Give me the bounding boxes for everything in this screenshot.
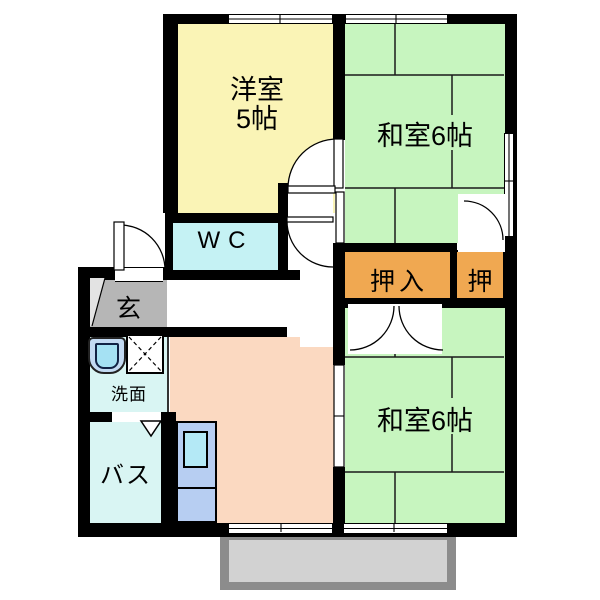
- floorplan: 洋室 5帖 和室6帖 和室6帖 WC 玄 押入 押 洗面 バス: [0, 0, 600, 600]
- wall-lower-room-left-b: [333, 467, 345, 525]
- wall-washroom-bath-divider: [87, 412, 112, 422]
- label-washroom: 洗面: [90, 380, 168, 405]
- corridor-upper: [288, 188, 333, 270]
- door-leaf-western: [334, 139, 343, 188]
- washing-machine-pan-icon: [126, 334, 164, 374]
- label-japanese-upper: 和室6帖: [345, 114, 505, 153]
- wall-wc-bottom: [165, 270, 300, 280]
- window-icon-japanese-top: [345, 14, 448, 24]
- label-bath: バス: [90, 455, 162, 490]
- window-icon-dk-bottom: [228, 523, 333, 534]
- wall-oshiire-top: [333, 243, 455, 252]
- door-leaf-entrance: [114, 222, 124, 270]
- corridor-lower: [300, 270, 333, 347]
- wall-wc-top: [165, 213, 290, 223]
- balcony-floor: [229, 540, 447, 582]
- wall-lower-room-left-a: [333, 307, 345, 365]
- wall-left-lower: [78, 267, 90, 537]
- label-japanese-lower: 和室6帖: [345, 399, 505, 438]
- sliding-door-icon-japanese-upper: [336, 192, 344, 243]
- label-oshi: 押: [455, 262, 505, 298]
- label-western-line1: 洋室: [230, 75, 284, 105]
- kitchen-unit-icon: [176, 421, 217, 523]
- washbasin-bowl-icon: [95, 343, 119, 369]
- label-western-line2: 5帖: [236, 104, 278, 134]
- label-entrance: 玄: [90, 289, 167, 325]
- window-icon-japanese-bottom: [343, 523, 448, 534]
- entrance-door-threshold: [115, 267, 163, 282]
- window-icon-western-top: [228, 14, 333, 24]
- door-swing-icon-entrance: [120, 225, 165, 270]
- wall-hall-bottom: [87, 327, 287, 337]
- window-icon-japanese-right: [504, 133, 514, 237]
- wall-oshiire-bottom: [333, 298, 517, 308]
- wall-porch-ledge: [90, 267, 115, 280]
- kitchen-sink-icon: [183, 431, 208, 468]
- wall-bath-dk: [161, 412, 176, 523]
- wall-corridor-left: [278, 183, 288, 280]
- wall-porch-corner: [163, 267, 173, 280]
- label-western-room: 洋室 5帖: [197, 76, 317, 134]
- label-wc: WC: [173, 227, 278, 255]
- kitchen-divider-line: [178, 487, 215, 489]
- wall-left-upper: [163, 14, 178, 213]
- label-oshiire: 押入: [343, 262, 455, 298]
- wall-right: [505, 14, 517, 533]
- wall-central-upper: [333, 14, 345, 140]
- sliding-door-icon-japanese-lower: [334, 365, 344, 467]
